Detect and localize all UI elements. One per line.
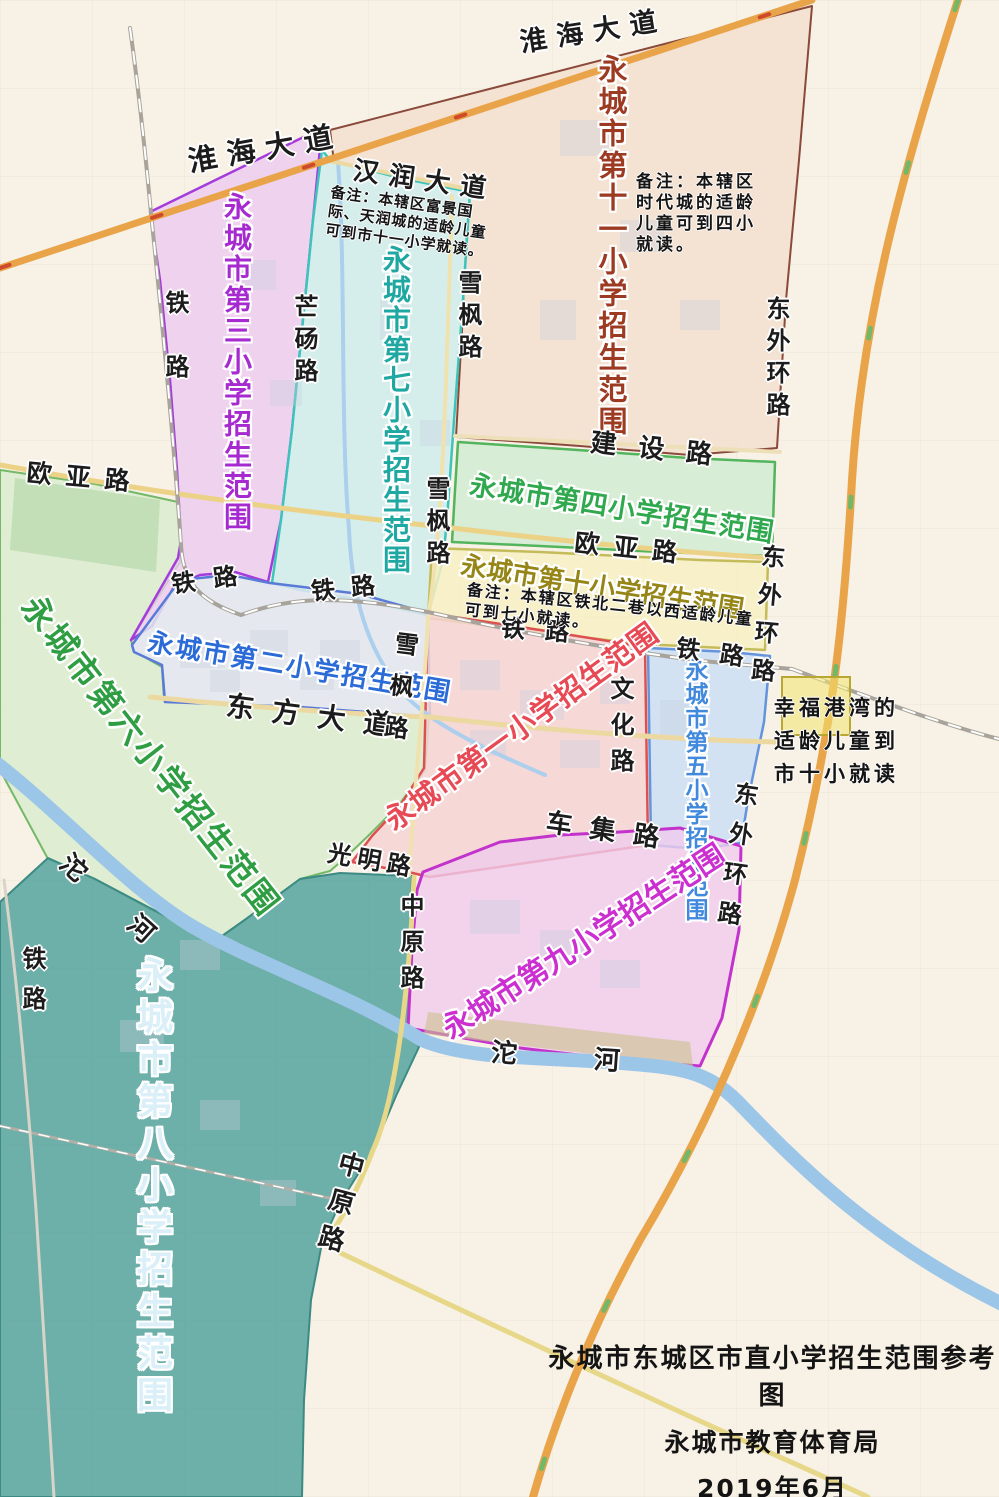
map-building-block [250, 630, 288, 656]
map-building-block [300, 668, 334, 690]
map-building-block [380, 300, 410, 340]
map-building-block [540, 930, 584, 960]
zone-school-5 [648, 648, 770, 849]
map-building-block [320, 640, 360, 666]
map-building-block [680, 300, 720, 330]
map-publisher: 永城市教育体育局 [545, 1423, 999, 1459]
map-building-block [240, 260, 276, 290]
map-building-block [540, 300, 576, 340]
map-building-block [470, 900, 520, 934]
map-building-block [600, 680, 630, 704]
school-district-map: 永城市第六小学招生范围永城市第八小学招生范围永城市第十一小学招生范围永城市第三小… [0, 0, 999, 1497]
note-11: 备注：本辖区时代城的适龄儿童可到四小就读。 [636, 172, 756, 256]
map-title: 永城市东城区市直小学招生范围参考图 [545, 1338, 999, 1412]
map-building-block [200, 1100, 240, 1130]
map-building-block [210, 670, 240, 692]
map-title-block: 永城市东城区市直小学招生范围参考图 永城市教育体育局 2019年6月 [545, 1338, 999, 1497]
map-building-block [660, 700, 694, 740]
map-building-block [180, 640, 225, 668]
note-xingfu: 幸福港湾的适龄儿童到市十小就读 [774, 692, 899, 791]
map-building-block [270, 380, 302, 406]
map-building-block [520, 690, 564, 720]
zone-school-4 [452, 442, 775, 556]
map-building-block [460, 660, 500, 690]
map-date: 2019年6月 [545, 1469, 999, 1497]
map-building-block [560, 120, 610, 156]
map-building-block [600, 960, 640, 988]
map-building-block [120, 1020, 164, 1052]
map-building-block [560, 740, 600, 768]
